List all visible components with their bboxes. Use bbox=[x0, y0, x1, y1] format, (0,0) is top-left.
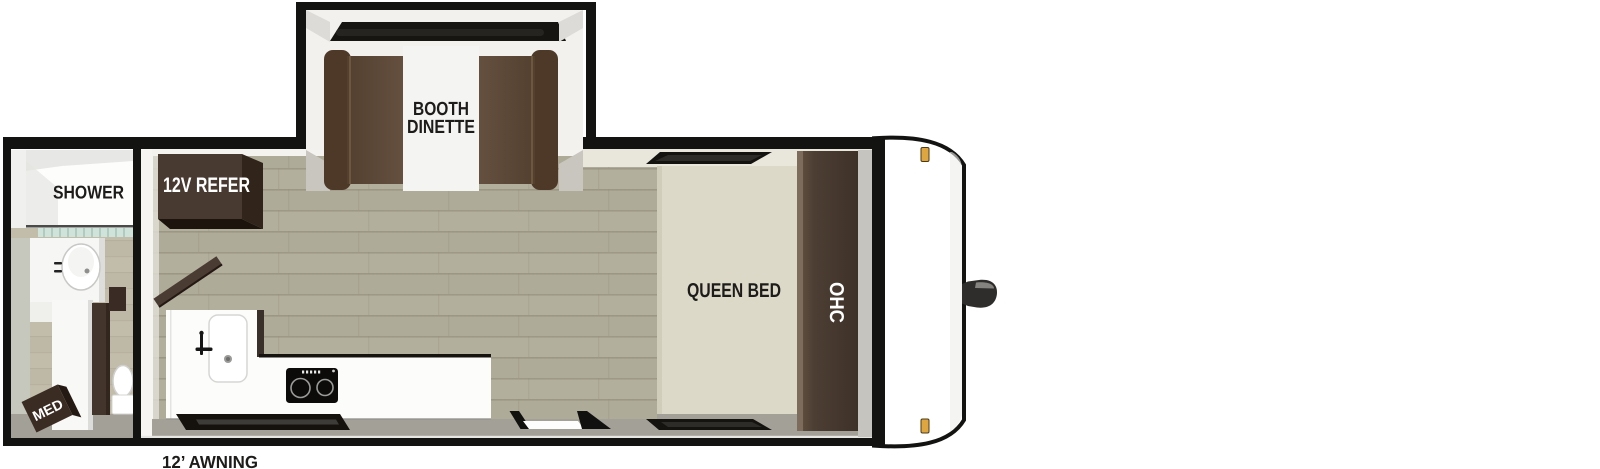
svg-text:DINETTE: DINETTE bbox=[407, 117, 475, 138]
svg-text:12V REFER: 12V REFER bbox=[163, 174, 250, 197]
svg-text:12’ AWNING: 12’ AWNING bbox=[162, 452, 258, 469]
svg-text:QUEEN BED: QUEEN BED bbox=[687, 280, 781, 302]
svg-text:SHOWER: SHOWER bbox=[53, 182, 124, 203]
svg-text:OHC: OHC bbox=[825, 282, 847, 323]
